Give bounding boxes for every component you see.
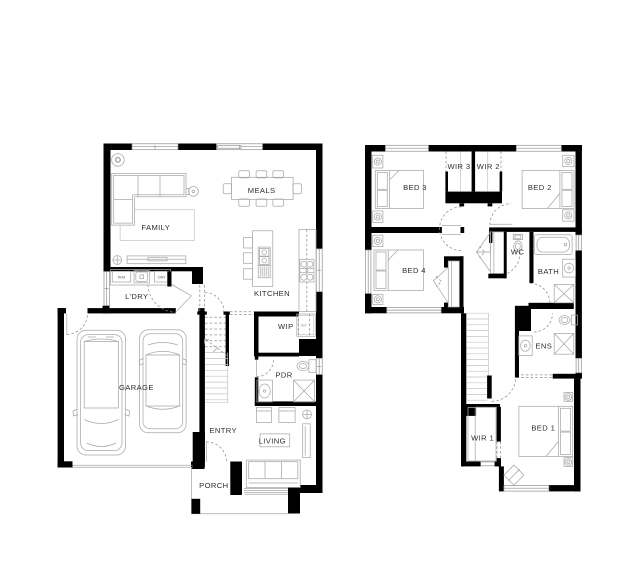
svg-text:KITCHEN: KITCHEN	[254, 289, 290, 298]
svg-text:BED 2: BED 2	[528, 183, 552, 192]
svg-text:WIP: WIP	[278, 322, 293, 331]
svg-text:BATH: BATH	[538, 267, 559, 276]
svg-text:DRY: DRY	[158, 276, 166, 280]
svg-text:LIVING: LIVING	[259, 437, 286, 446]
svg-text:PORCH: PORCH	[199, 481, 228, 490]
svg-text:WIR 3: WIR 3	[448, 162, 471, 171]
svg-text:BED 3: BED 3	[403, 183, 427, 192]
svg-text:PDR: PDR	[275, 370, 292, 379]
svg-text:WIR 2: WIR 2	[477, 162, 500, 171]
svg-text:BED 1: BED 1	[531, 424, 555, 433]
svg-text:L’DRY: L’DRY	[125, 292, 148, 301]
svg-text:ENTRY: ENTRY	[209, 426, 237, 435]
svg-text:ENS: ENS	[535, 342, 552, 351]
svg-text:WC: WC	[511, 248, 525, 257]
svg-text:FAMILY: FAMILY	[141, 223, 170, 232]
svg-text:GARAGE: GARAGE	[119, 383, 154, 392]
svg-text:REF: REF	[301, 324, 307, 328]
svg-text:WIR 1: WIR 1	[471, 434, 494, 443]
svg-text:MEALS: MEALS	[248, 186, 276, 195]
svg-text:W/M: W/M	[118, 276, 125, 280]
svg-text:BED 4: BED 4	[402, 266, 426, 275]
